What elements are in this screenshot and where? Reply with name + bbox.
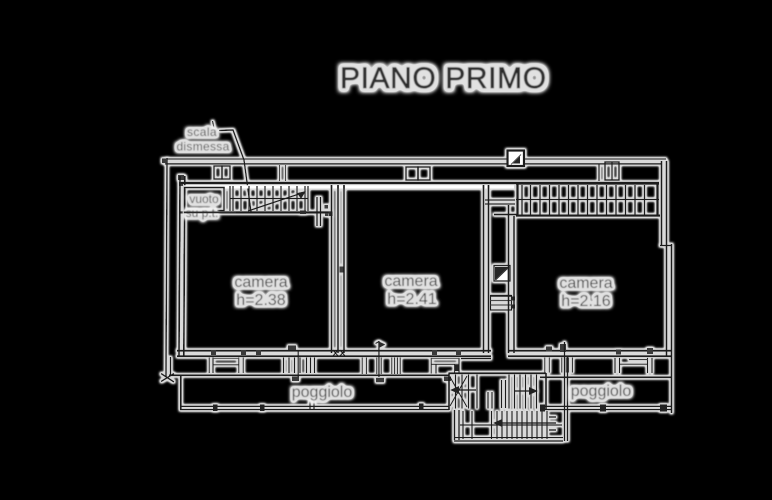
svg-text:h=2.16: h=2.16 [561,293,610,310]
svg-text:vuoto: vuoto [189,192,219,206]
svg-text:scala: scala [187,125,217,139]
svg-text:PIANO PRIMO: PIANO PRIMO [340,62,547,95]
svg-text:camera: camera [384,273,437,290]
svg-text:poggiolo: poggiolo [571,383,632,400]
svg-text:h=2.38: h=2.38 [236,292,285,309]
svg-text:camera: camera [234,274,287,291]
svg-text:poggiolo: poggiolo [292,384,353,401]
svg-text:camera: camera [559,275,612,292]
svg-text:dismessa: dismessa [176,140,229,154]
svg-text:h=2.41: h=2.41 [387,291,436,308]
